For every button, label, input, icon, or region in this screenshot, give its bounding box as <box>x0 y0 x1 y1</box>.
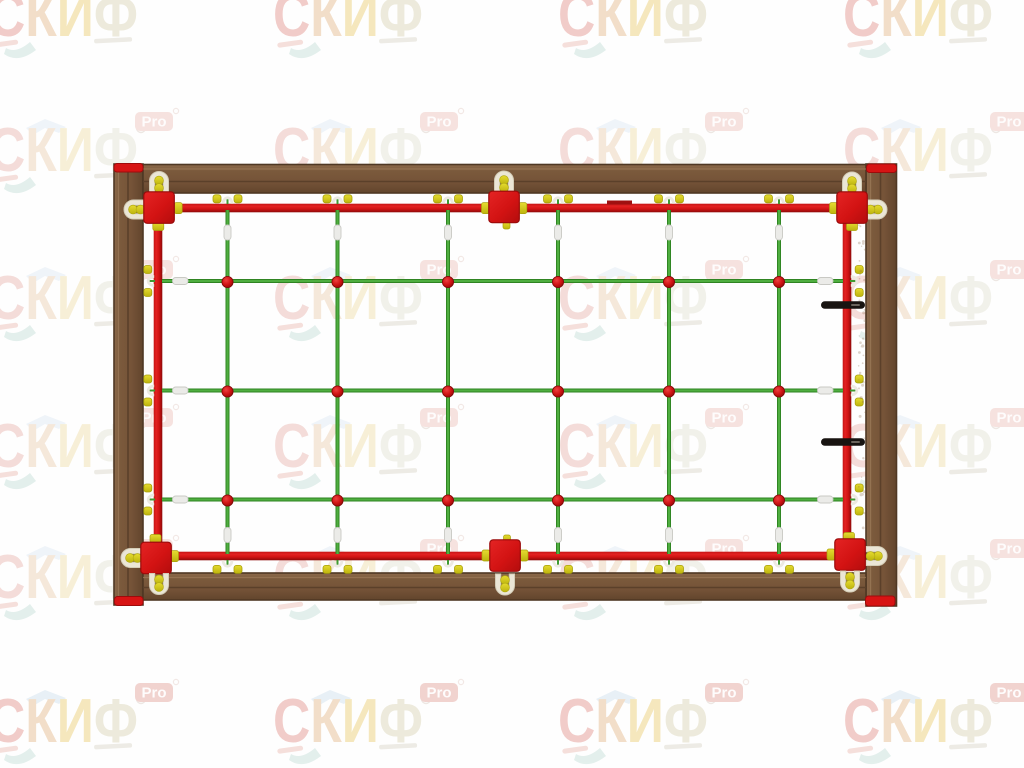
svg-text:Pro: Pro <box>711 410 736 427</box>
svg-text:Pro: Pro <box>996 410 1021 427</box>
svg-text:Pro: Pro <box>996 685 1021 702</box>
svg-text:СКИФ: СКИФ <box>0 0 138 50</box>
svg-text:Pro: Pro <box>141 114 166 131</box>
svg-text:Pro: Pro <box>996 114 1021 131</box>
svg-text:Pro: Pro <box>711 114 736 131</box>
svg-text:Pro: Pro <box>996 262 1021 279</box>
svg-text:Pro: Pro <box>711 262 736 279</box>
svg-text:Pro: Pro <box>996 541 1021 558</box>
svg-text:Pro: Pro <box>711 685 736 702</box>
svg-text:Pro: Pro <box>141 685 166 702</box>
svg-text:Pro: Pro <box>426 114 451 131</box>
svg-text:Pro: Pro <box>426 685 451 702</box>
